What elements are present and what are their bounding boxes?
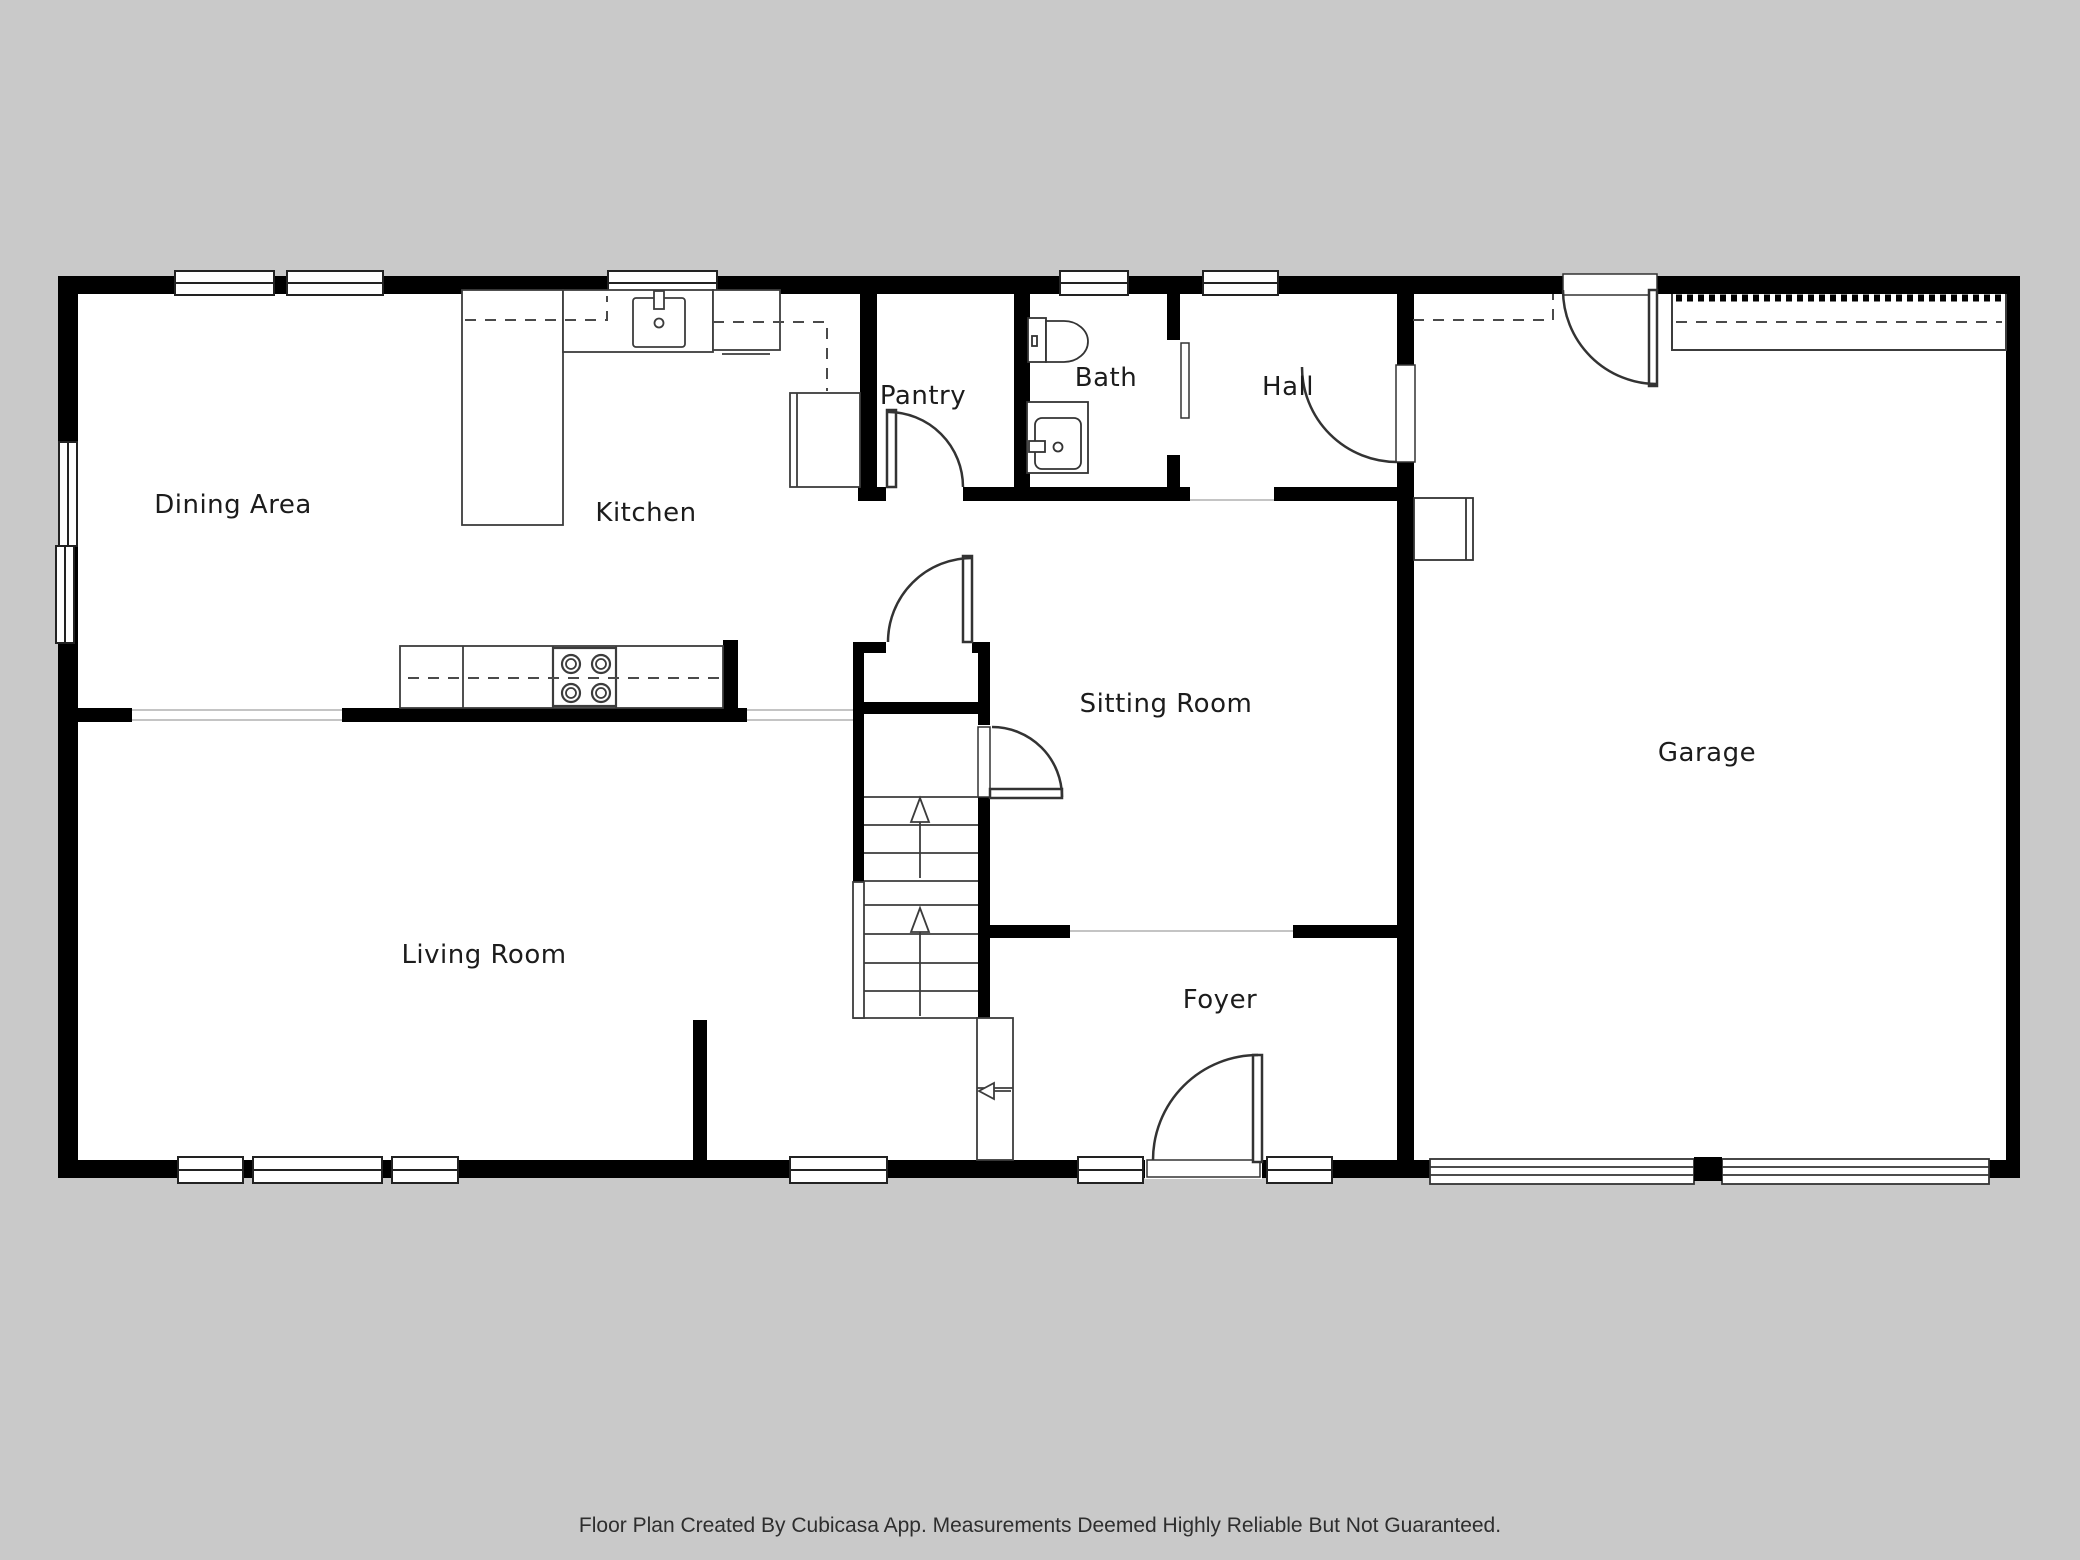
window	[392, 1157, 458, 1183]
wall-foyer-stub-west	[990, 925, 1070, 938]
wall-east	[2006, 276, 2020, 1178]
room-label-hall: Hall	[1262, 372, 1314, 402]
counter-corner	[713, 290, 780, 350]
toilet-icon	[1028, 318, 1088, 362]
window	[790, 1157, 887, 1183]
bathroom-vanity-icon	[1027, 402, 1088, 473]
window	[1060, 271, 1128, 295]
wall-kitchen-living	[342, 708, 747, 722]
room-label-living-room: Living Room	[401, 940, 566, 970]
entry-steps	[977, 1018, 1013, 1160]
window	[253, 1157, 382, 1183]
room-label-dining-area: Dining Area	[154, 490, 312, 520]
footer-disclaimer: Floor Plan Created By Cubicasa App. Meas…	[579, 1514, 1501, 1538]
stair-railing	[853, 882, 864, 1018]
room-label-pantry: Pantry	[880, 381, 966, 411]
garage-overhead-door-south	[1430, 1157, 1989, 1184]
floor-plan-page: Dining Area Kitchen Pantry Bath Hall Sit…	[0, 0, 2080, 1560]
room-label-kitchen: Kitchen	[595, 498, 696, 528]
room-label-foyer: Foyer	[1183, 985, 1258, 1015]
refrigerator-icon	[790, 393, 860, 487]
window	[287, 271, 383, 295]
window	[175, 271, 274, 295]
window-sidelite	[1078, 1157, 1143, 1183]
garage-door-pier	[1694, 1157, 1722, 1181]
room-label-sitting-room: Sitting Room	[1080, 689, 1253, 719]
wall-living-south-stub	[693, 1020, 707, 1160]
window-sidelite	[1267, 1157, 1332, 1183]
wall-stair-west	[853, 642, 864, 882]
room-label-garage: Garage	[1658, 738, 1756, 768]
wall-pantry-west	[860, 294, 877, 487]
floor-plan-drawing	[0, 0, 2080, 1560]
wall-hall-south-stub	[1274, 487, 1397, 501]
counter-tall-cabinet	[462, 290, 563, 525]
wall-foyer-stub-east	[1293, 925, 1397, 938]
kitchen-sink-icon	[633, 291, 685, 347]
wall-closet-east	[978, 642, 990, 727]
window	[178, 1157, 243, 1183]
wall-island-end-stub	[723, 640, 738, 710]
window	[1203, 271, 1278, 295]
wall-west	[58, 276, 78, 1178]
room-label-bath: Bath	[1075, 363, 1137, 393]
wall-closet-mid	[853, 702, 990, 714]
window	[59, 442, 77, 546]
wall-stair-east	[978, 797, 990, 1018]
window	[56, 546, 74, 643]
water-heater-icon	[1414, 498, 1473, 560]
wall-dining-living-stub	[78, 708, 132, 722]
